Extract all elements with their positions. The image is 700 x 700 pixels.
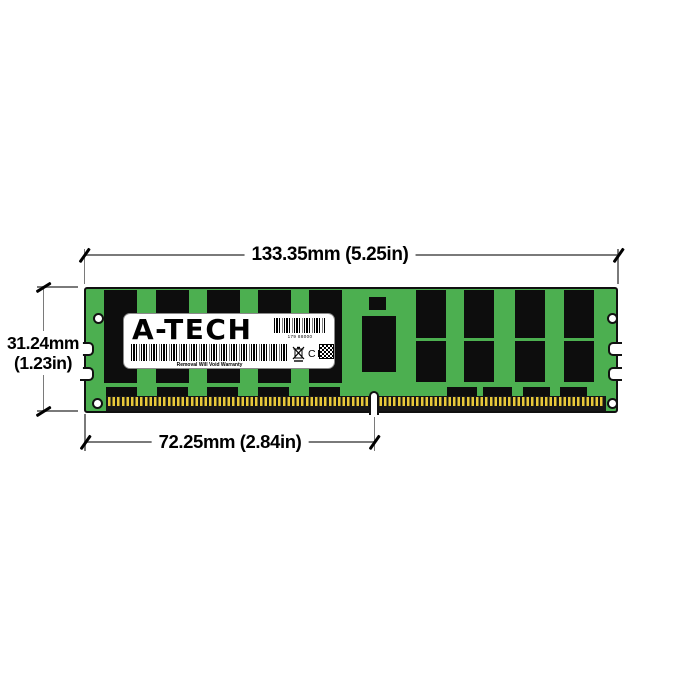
key-notch	[369, 391, 379, 415]
notch-extension-line-right	[374, 417, 376, 451]
barcode-icon	[131, 344, 288, 361]
mounting-hole	[93, 313, 104, 324]
weee-bin-icon	[292, 345, 305, 367]
mounting-hole	[92, 398, 103, 409]
spd-chip	[369, 297, 386, 310]
serial-number: 179 88000	[274, 334, 326, 339]
memory-chip	[416, 341, 446, 382]
edge-notch	[608, 342, 622, 356]
memory-chip	[416, 290, 446, 338]
edge-notch	[608, 367, 622, 381]
mounting-hole	[607, 313, 618, 324]
mounting-hole	[607, 398, 618, 409]
memory-chip	[515, 290, 545, 338]
product-label: A-TECH 179 88000 Removal Will Void Warra…	[123, 313, 335, 369]
memory-chip	[564, 290, 594, 338]
memory-chip	[464, 341, 494, 382]
barcode-icon	[274, 318, 326, 333]
ram-module: A-TECH 179 88000 Removal Will Void Warra…	[84, 287, 618, 413]
product-diagram: 133.35mm (5.25in) 31.24mm (1.23in) 72.25…	[0, 0, 700, 700]
memory-chip	[464, 290, 494, 338]
memory-chip	[564, 341, 594, 382]
memory-chip	[515, 341, 545, 382]
width-dimension-label: 133.35mm (5.25in)	[245, 244, 416, 266]
pin-row	[106, 396, 606, 411]
notch-dimension-label: 72.25mm (2.84in)	[152, 431, 309, 453]
height-dimension-label-in: (1.23in)	[7, 353, 79, 373]
qr-code-icon	[319, 344, 334, 359]
gold-pins	[108, 397, 604, 406]
warranty-text: Removal Will Void Warranty	[131, 362, 288, 368]
brand-logo: A-TECH	[132, 316, 252, 343]
register-chip	[362, 316, 396, 372]
height-dimension-label-mm: 31.24mm	[7, 333, 79, 353]
